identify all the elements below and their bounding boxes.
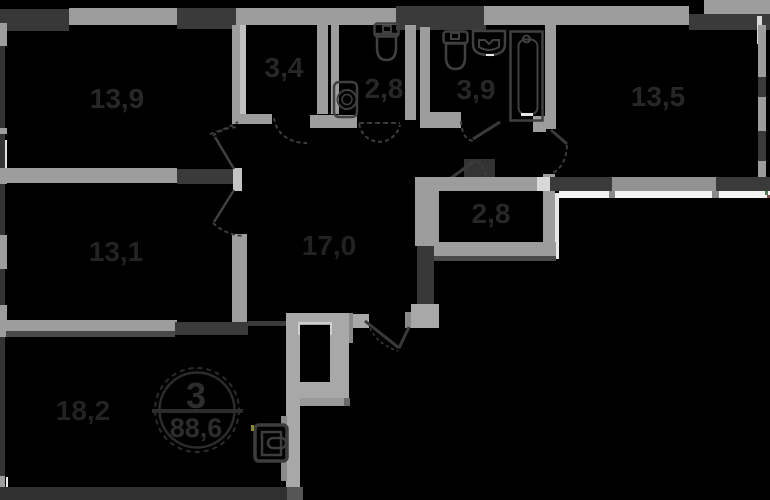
svg-text:3: 3 bbox=[186, 375, 206, 416]
svg-text:18,2: 18,2 bbox=[56, 395, 111, 426]
svg-text:2,8: 2,8 bbox=[472, 198, 511, 229]
svg-text:88,6: 88,6 bbox=[170, 413, 223, 443]
svg-text:13,5: 13,5 bbox=[631, 81, 686, 112]
svg-text:17,0: 17,0 bbox=[302, 230, 357, 261]
svg-text:2,8: 2,8 bbox=[365, 73, 404, 104]
svg-text:13,9: 13,9 bbox=[90, 83, 145, 114]
svg-text:3,9: 3,9 bbox=[457, 74, 496, 105]
svg-text:13,1: 13,1 bbox=[89, 236, 144, 267]
svg-text:3,4: 3,4 bbox=[265, 52, 304, 83]
